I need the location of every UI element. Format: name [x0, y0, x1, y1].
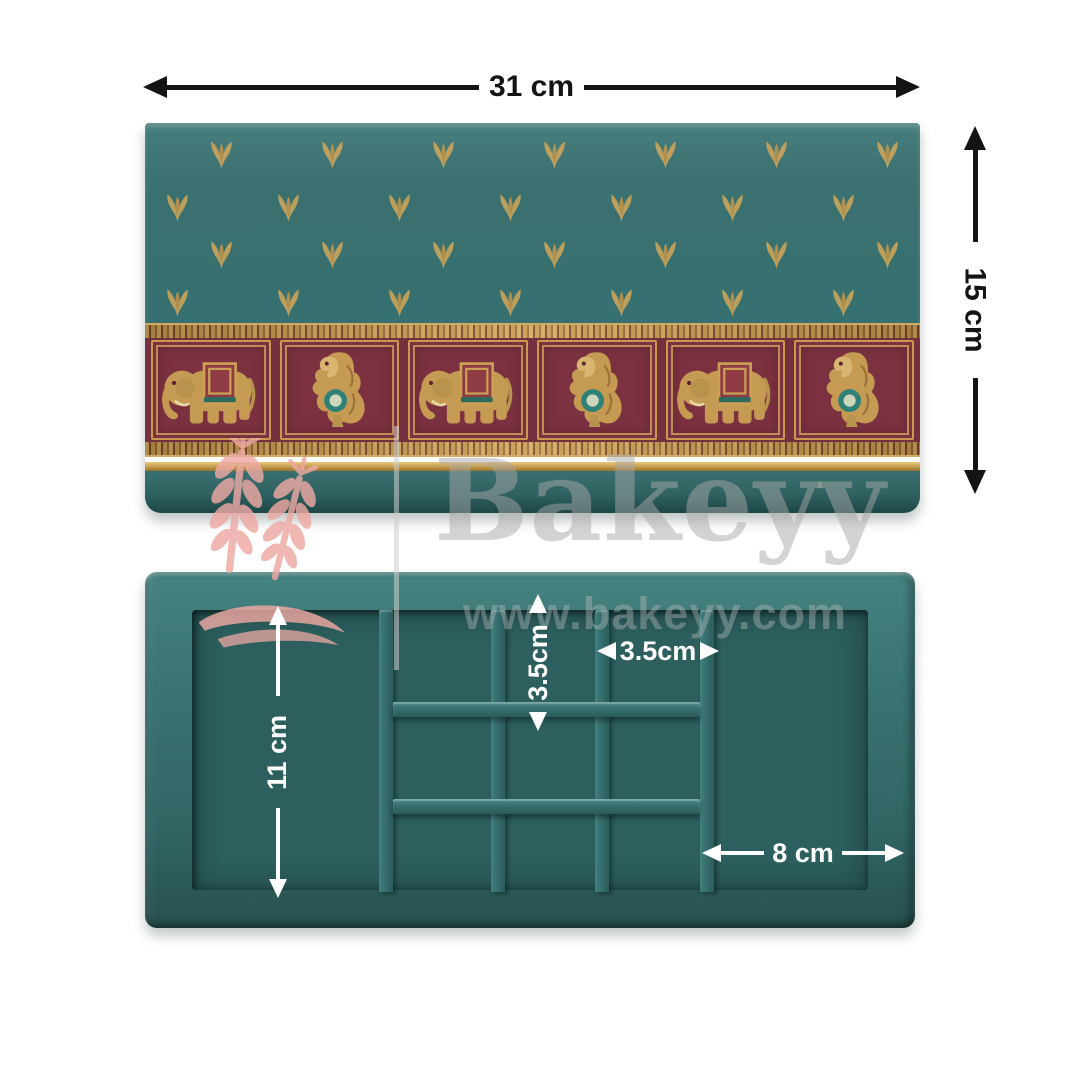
leaf-sprig-motif [494, 282, 527, 319]
leaf-sprig-motif [649, 134, 682, 171]
dimension-cell-width: 3.5cm [604, 634, 712, 668]
band-panel [794, 340, 914, 440]
leaf-sprig-motif [538, 134, 571, 171]
leaf-sprig-motif [383, 187, 416, 224]
dimension-cell-height: 3.5cm [520, 594, 556, 722]
leaf-sprig-motif [827, 187, 860, 224]
arrowhead-up-icon [269, 606, 287, 625]
leaf-sprig-motif [716, 282, 749, 319]
dimension-inner-height: 11 cm [258, 606, 298, 898]
inner-height-label-box: 11 cm [262, 700, 294, 804]
arrowhead-right-icon [885, 844, 904, 862]
leaf-sprig-motif [161, 282, 194, 319]
leaf-sprig-motif [871, 234, 904, 271]
dimension-line [167, 85, 479, 90]
dimension-line [276, 808, 280, 879]
arrowhead-down-icon [964, 470, 986, 494]
yali-motif [296, 346, 384, 434]
gold-meander-border [145, 325, 920, 338]
leaf-sprig-motif [605, 282, 638, 319]
dimension-line [721, 851, 764, 855]
inner-height-label: 11 cm [263, 714, 294, 789]
arrowhead-left-icon [143, 76, 167, 98]
leaf-sprig-motif [760, 134, 793, 171]
leaf-sprig-motif [316, 234, 349, 271]
arrowhead-down-icon [269, 879, 287, 898]
leaf-sprig-motif [716, 187, 749, 224]
leaf-sprig-motif [427, 134, 460, 171]
dimension-line [842, 851, 885, 855]
leaf-sprig-motif [494, 187, 527, 224]
band-panel [537, 340, 657, 440]
cell-height-label: 3.5cm [523, 624, 554, 701]
elephant-motif [415, 346, 521, 434]
side-height-label: 15 cm [958, 267, 992, 352]
arrowhead-left-icon [597, 642, 616, 660]
band-panel [151, 340, 271, 440]
leaf-sprig-motif [871, 134, 904, 171]
dimension-side-height: 15 cm [955, 126, 995, 494]
side-height-label-box: 15 cm [957, 250, 993, 370]
arrowhead-up-icon [529, 594, 547, 613]
band-panel [666, 340, 786, 440]
vertical-divider [379, 610, 393, 892]
horizontal-divider [393, 799, 700, 814]
band-panel [280, 340, 400, 440]
dimension-line [276, 625, 280, 696]
leaf-sprig-motif [272, 187, 305, 224]
dimension-line [584, 85, 896, 90]
dimension-compartment-width: 8 cm [702, 836, 904, 870]
leaf-sprig-motif [205, 234, 238, 271]
arrowhead-up-icon [964, 126, 986, 150]
dimension-top-width: 31 cm [143, 70, 920, 104]
leaf-sprig-motif [161, 187, 194, 224]
lid-pattern [145, 123, 920, 323]
leaf-sprig-motif [649, 234, 682, 271]
product-dimension-image: 31 cm 15 cm Bakeyy www.bakeyy [0, 0, 1080, 1080]
watermark-divider-line [394, 426, 399, 670]
leaf-sprig-motif [272, 282, 305, 319]
leaf-sprig-motif [760, 234, 793, 271]
compartment-width-label: 8 cm [772, 838, 834, 869]
dimension-line [973, 378, 978, 470]
yali-motif [553, 346, 641, 434]
top-width-label: 31 cm [489, 70, 574, 104]
arrowhead-right-icon [700, 642, 719, 660]
leaf-sprig-motif [383, 282, 416, 319]
arrowhead-down-icon [529, 712, 547, 731]
leaf-sprig-motif [605, 187, 638, 224]
yali-motif [810, 346, 898, 434]
leaf-sprig-motif [427, 234, 460, 271]
watermark-brand: Bakeyy [408, 440, 912, 563]
vertical-divider [491, 610, 505, 892]
leaf-sprig-motif [316, 134, 349, 171]
dimension-line [973, 150, 978, 242]
cell-width-label: 3.5cm [620, 636, 697, 667]
arrowhead-right-icon [896, 76, 920, 98]
elephant-motif [673, 346, 779, 434]
band-panel [408, 340, 528, 440]
band-panels [145, 338, 920, 442]
leaf-sprig-motif [205, 134, 238, 171]
watermark-url: www.bakeyy.com [420, 588, 890, 640]
leaf-sprig-motif [538, 234, 571, 271]
leaf-sprig-motif [827, 282, 860, 319]
elephant-motif [158, 346, 264, 434]
arrowhead-left-icon [702, 844, 721, 862]
